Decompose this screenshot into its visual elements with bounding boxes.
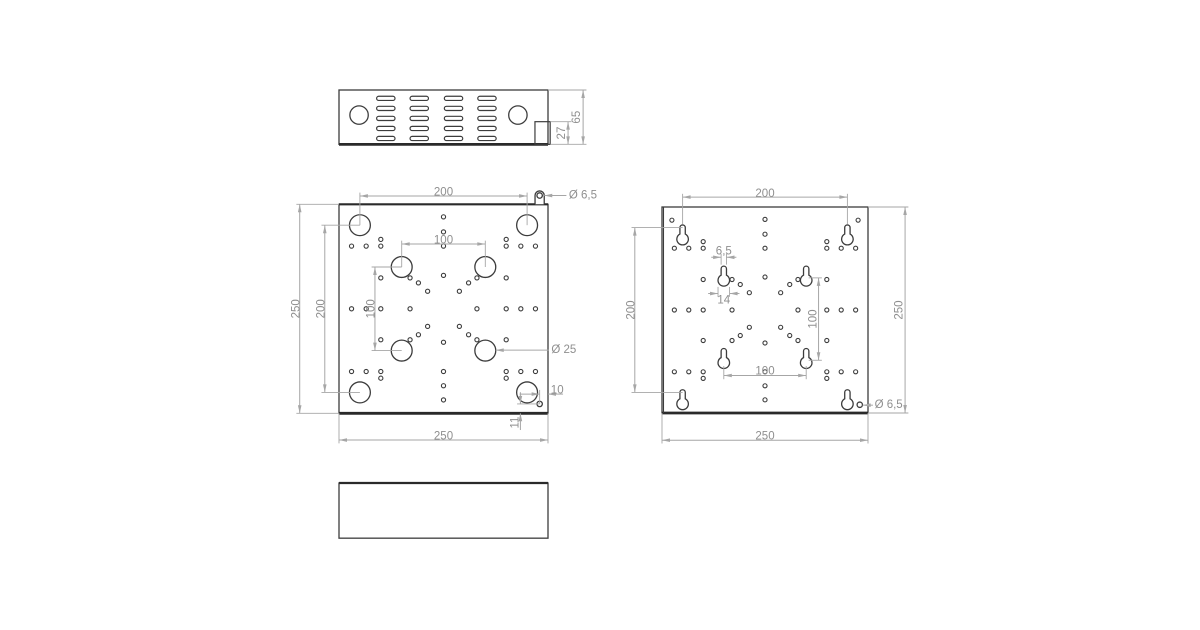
- small-hole: [796, 338, 800, 342]
- back-plate-view: 2002002502506,514100100Ø 6,5: [626, 188, 909, 444]
- vent-slot: [377, 136, 395, 140]
- small-hole: [788, 333, 792, 337]
- small-hole: [504, 369, 508, 373]
- mounting-plate-drawing: 6527200100250200100250Ø 25Ø 6,5101120020…: [0, 0, 1200, 630]
- dimension-arrowhead: [683, 195, 691, 199]
- small-hole: [457, 289, 461, 293]
- small-hole: [457, 324, 461, 328]
- plate-outline: [339, 483, 548, 538]
- dimension-label: 200: [434, 187, 453, 199]
- small-hole: [763, 398, 767, 402]
- dimension-arrowhead: [860, 438, 868, 442]
- small-hole: [672, 370, 676, 374]
- vent-slot: [410, 116, 428, 120]
- small-hole: [825, 376, 829, 380]
- small-hole: [825, 370, 829, 374]
- plate-outline: [662, 207, 868, 413]
- technical-drawing-canvas: 6527200100250200100250Ø 25Ø 6,5101120020…: [0, 0, 1200, 630]
- small-hole: [504, 338, 508, 342]
- small-hole: [839, 246, 843, 250]
- vent-slot: [478, 96, 496, 100]
- small-hole: [475, 276, 479, 280]
- dimension-arrowhead: [544, 194, 552, 198]
- small-hole: [763, 217, 767, 221]
- small-hole: [379, 276, 383, 280]
- small-hole: [379, 338, 383, 342]
- bottom-view: [339, 483, 548, 538]
- small-hole: [519, 369, 523, 373]
- dimension-label: 100: [755, 365, 774, 377]
- dimension-label: 27: [556, 127, 568, 140]
- vent-slot: [377, 106, 395, 110]
- small-hole: [738, 333, 742, 337]
- dimension-65: Ø 6,5: [544, 190, 597, 202]
- dimension-label: 200: [755, 188, 774, 200]
- dimension-label: 100: [808, 309, 820, 328]
- small-hole: [825, 338, 829, 342]
- small-hole: [747, 291, 751, 295]
- small-hole: [416, 333, 420, 337]
- vent-slot: [444, 126, 462, 130]
- small-hole: [441, 384, 445, 388]
- dimension-arrowhead: [581, 136, 585, 144]
- small-hole: [466, 281, 470, 285]
- dimension-label: 100: [366, 299, 378, 318]
- vent-slot: [478, 116, 496, 120]
- small-hole: [349, 369, 353, 373]
- small-hole: [416, 281, 420, 285]
- small-hole: [504, 237, 508, 241]
- small-hole: [796, 308, 800, 312]
- small-hole: [854, 308, 858, 312]
- dimension-label: 65: [571, 111, 583, 124]
- small-hole: [379, 307, 383, 311]
- small-hole: [379, 237, 383, 241]
- small-hole: [687, 308, 691, 312]
- small-hole: [504, 307, 508, 311]
- mounting-hole: [475, 340, 496, 361]
- small-hole: [763, 384, 767, 388]
- dimension-arrowhead: [298, 405, 302, 413]
- dimension-arrowhead: [323, 384, 327, 392]
- small-hole: [364, 369, 368, 373]
- dimension-27: 27: [550, 122, 571, 145]
- small-hole: [504, 276, 508, 280]
- small-hole: [670, 218, 674, 222]
- dimension-label: 250: [755, 430, 774, 442]
- dimension-arrowhead: [581, 90, 585, 98]
- mounting-hole: [350, 106, 368, 124]
- small-hole: [466, 333, 470, 337]
- small-hole: [349, 307, 353, 311]
- small-hole: [408, 338, 412, 342]
- small-hole: [701, 308, 705, 312]
- small-hole: [747, 325, 751, 329]
- small-hole: [730, 338, 734, 342]
- small-hole: [779, 325, 783, 329]
- dimension-arrowhead: [633, 384, 637, 392]
- small-hole: [672, 308, 676, 312]
- small-hole: [441, 215, 445, 219]
- small-hole: [533, 307, 537, 311]
- dimension-label: 250: [290, 299, 302, 318]
- dimension-65: Ø 6,5: [863, 399, 903, 411]
- small-hole: [408, 276, 412, 280]
- dimension-label: 200: [315, 299, 327, 318]
- small-hole: [379, 376, 383, 380]
- small-hole: [426, 289, 430, 293]
- vent-slot: [377, 116, 395, 120]
- small-hole: [763, 246, 767, 250]
- dimension-arrowhead: [540, 438, 548, 442]
- mounting-hole: [857, 402, 862, 407]
- small-hole: [349, 244, 353, 248]
- small-hole: [701, 240, 705, 244]
- small-hole: [730, 277, 734, 281]
- small-hole: [687, 246, 691, 250]
- vent-slot: [377, 96, 395, 100]
- vent-slot: [410, 106, 428, 110]
- small-hole: [825, 246, 829, 250]
- vent-slot: [410, 126, 428, 130]
- dimension-arrowhead: [323, 225, 327, 233]
- small-hole: [825, 240, 829, 244]
- small-hole: [825, 277, 829, 281]
- dimension-label: 100: [434, 235, 453, 247]
- small-hole: [854, 370, 858, 374]
- small-hole: [441, 398, 445, 402]
- small-hole: [839, 370, 843, 374]
- small-hole: [730, 308, 734, 312]
- dimension-label: Ø 25: [551, 344, 576, 356]
- vent-slot: [444, 116, 462, 120]
- small-hole: [687, 370, 691, 374]
- small-hole: [701, 370, 705, 374]
- dimension-arrowhead: [903, 405, 907, 413]
- small-hole: [856, 218, 860, 222]
- vent-slot: [478, 126, 496, 130]
- dimension-label: 10: [551, 384, 564, 396]
- small-hole: [825, 308, 829, 312]
- small-hole: [839, 308, 843, 312]
- small-hole: [504, 376, 508, 380]
- front-plate-view: 200100250200100250Ø 25Ø 6,51011: [290, 187, 597, 444]
- dimension-label: 6,5: [716, 245, 732, 257]
- small-hole: [701, 376, 705, 380]
- dimension-label: 14: [717, 295, 730, 307]
- dimension-label: 11: [509, 417, 521, 429]
- small-hole: [379, 244, 383, 248]
- dimension-250: 250: [868, 207, 908, 413]
- vent-slot: [410, 136, 428, 140]
- dimension-arrowhead: [298, 204, 302, 212]
- dimension-arrowhead: [339, 438, 347, 442]
- dimension-arrowhead: [633, 228, 637, 236]
- small-hole: [796, 277, 800, 281]
- small-hole: [763, 232, 767, 236]
- vent-slot: [478, 106, 496, 110]
- small-hole: [475, 338, 479, 342]
- small-hole: [441, 273, 445, 277]
- small-hole: [364, 244, 368, 248]
- vent-slot: [444, 106, 462, 110]
- dimension-250: 250: [662, 413, 868, 443]
- small-hole: [519, 244, 523, 248]
- vent-slot: [410, 96, 428, 100]
- small-hole: [763, 341, 767, 345]
- small-hole: [475, 307, 479, 311]
- small-hole: [441, 369, 445, 373]
- mounting-hole: [509, 106, 527, 124]
- dimension-label: 200: [626, 300, 638, 319]
- dimension-label: Ø 6,5: [569, 190, 597, 202]
- dimension-label: 250: [434, 430, 453, 442]
- small-hole: [441, 230, 445, 234]
- dimension-arrowhead: [360, 194, 368, 198]
- vent-slot: [444, 136, 462, 140]
- small-hole: [763, 275, 767, 279]
- dimension-arrowhead: [662, 438, 670, 442]
- small-hole: [441, 340, 445, 344]
- vent-slot: [478, 136, 496, 140]
- dimension-label: Ø 6,5: [875, 399, 903, 411]
- small-hole: [779, 291, 783, 295]
- small-hole: [788, 282, 792, 286]
- vent-slot: [444, 96, 462, 100]
- small-hole: [701, 277, 705, 281]
- small-hole: [701, 338, 705, 342]
- dimension-arrowhead: [519, 194, 527, 198]
- dimension-label: 250: [893, 300, 905, 319]
- small-hole: [426, 324, 430, 328]
- eyelet-hole: [537, 193, 542, 198]
- small-hole: [504, 244, 508, 248]
- top-view: 6527: [339, 90, 586, 144]
- small-hole: [672, 246, 676, 250]
- small-hole: [701, 246, 705, 250]
- small-hole: [738, 282, 742, 286]
- small-hole: [854, 246, 858, 250]
- vent-slot: [377, 126, 395, 130]
- small-hole: [408, 307, 412, 311]
- small-hole: [519, 307, 523, 311]
- small-hole: [379, 369, 383, 373]
- dimension-arrowhead: [903, 207, 907, 215]
- dimension-arrowhead: [839, 195, 847, 199]
- small-hole: [533, 244, 537, 248]
- small-hole: [533, 369, 537, 373]
